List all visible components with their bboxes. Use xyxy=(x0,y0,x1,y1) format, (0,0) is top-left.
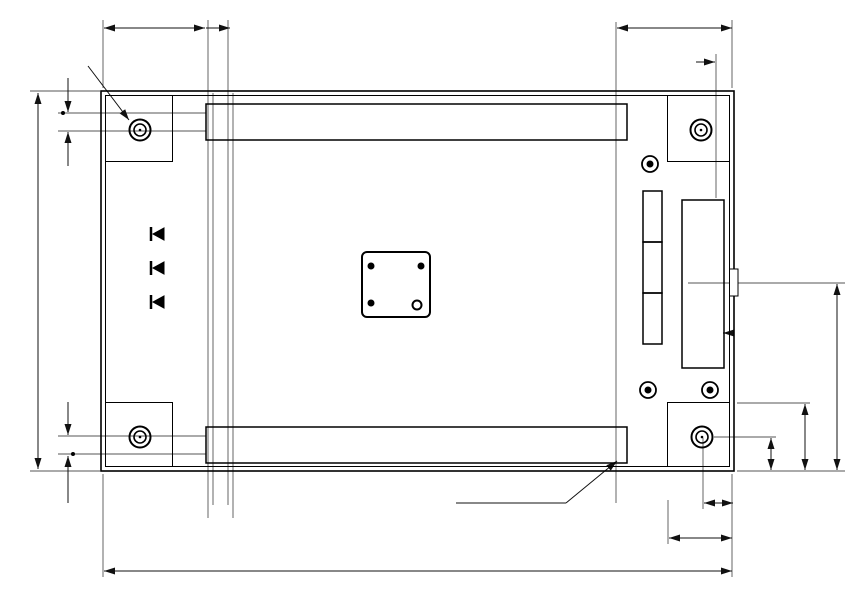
ic-u1-body xyxy=(362,252,430,317)
mounting-hole-bottom-left xyxy=(130,427,151,448)
mounting-hole-bottom-right xyxy=(692,427,713,448)
drawing-linework xyxy=(0,0,850,594)
power-pads xyxy=(640,156,718,398)
mounting-hole-top-left xyxy=(130,120,151,141)
mounting-hole-top-right xyxy=(691,120,712,141)
pcb-dimensional-drawing xyxy=(0,0,850,594)
led-diode-symbols xyxy=(151,227,164,309)
